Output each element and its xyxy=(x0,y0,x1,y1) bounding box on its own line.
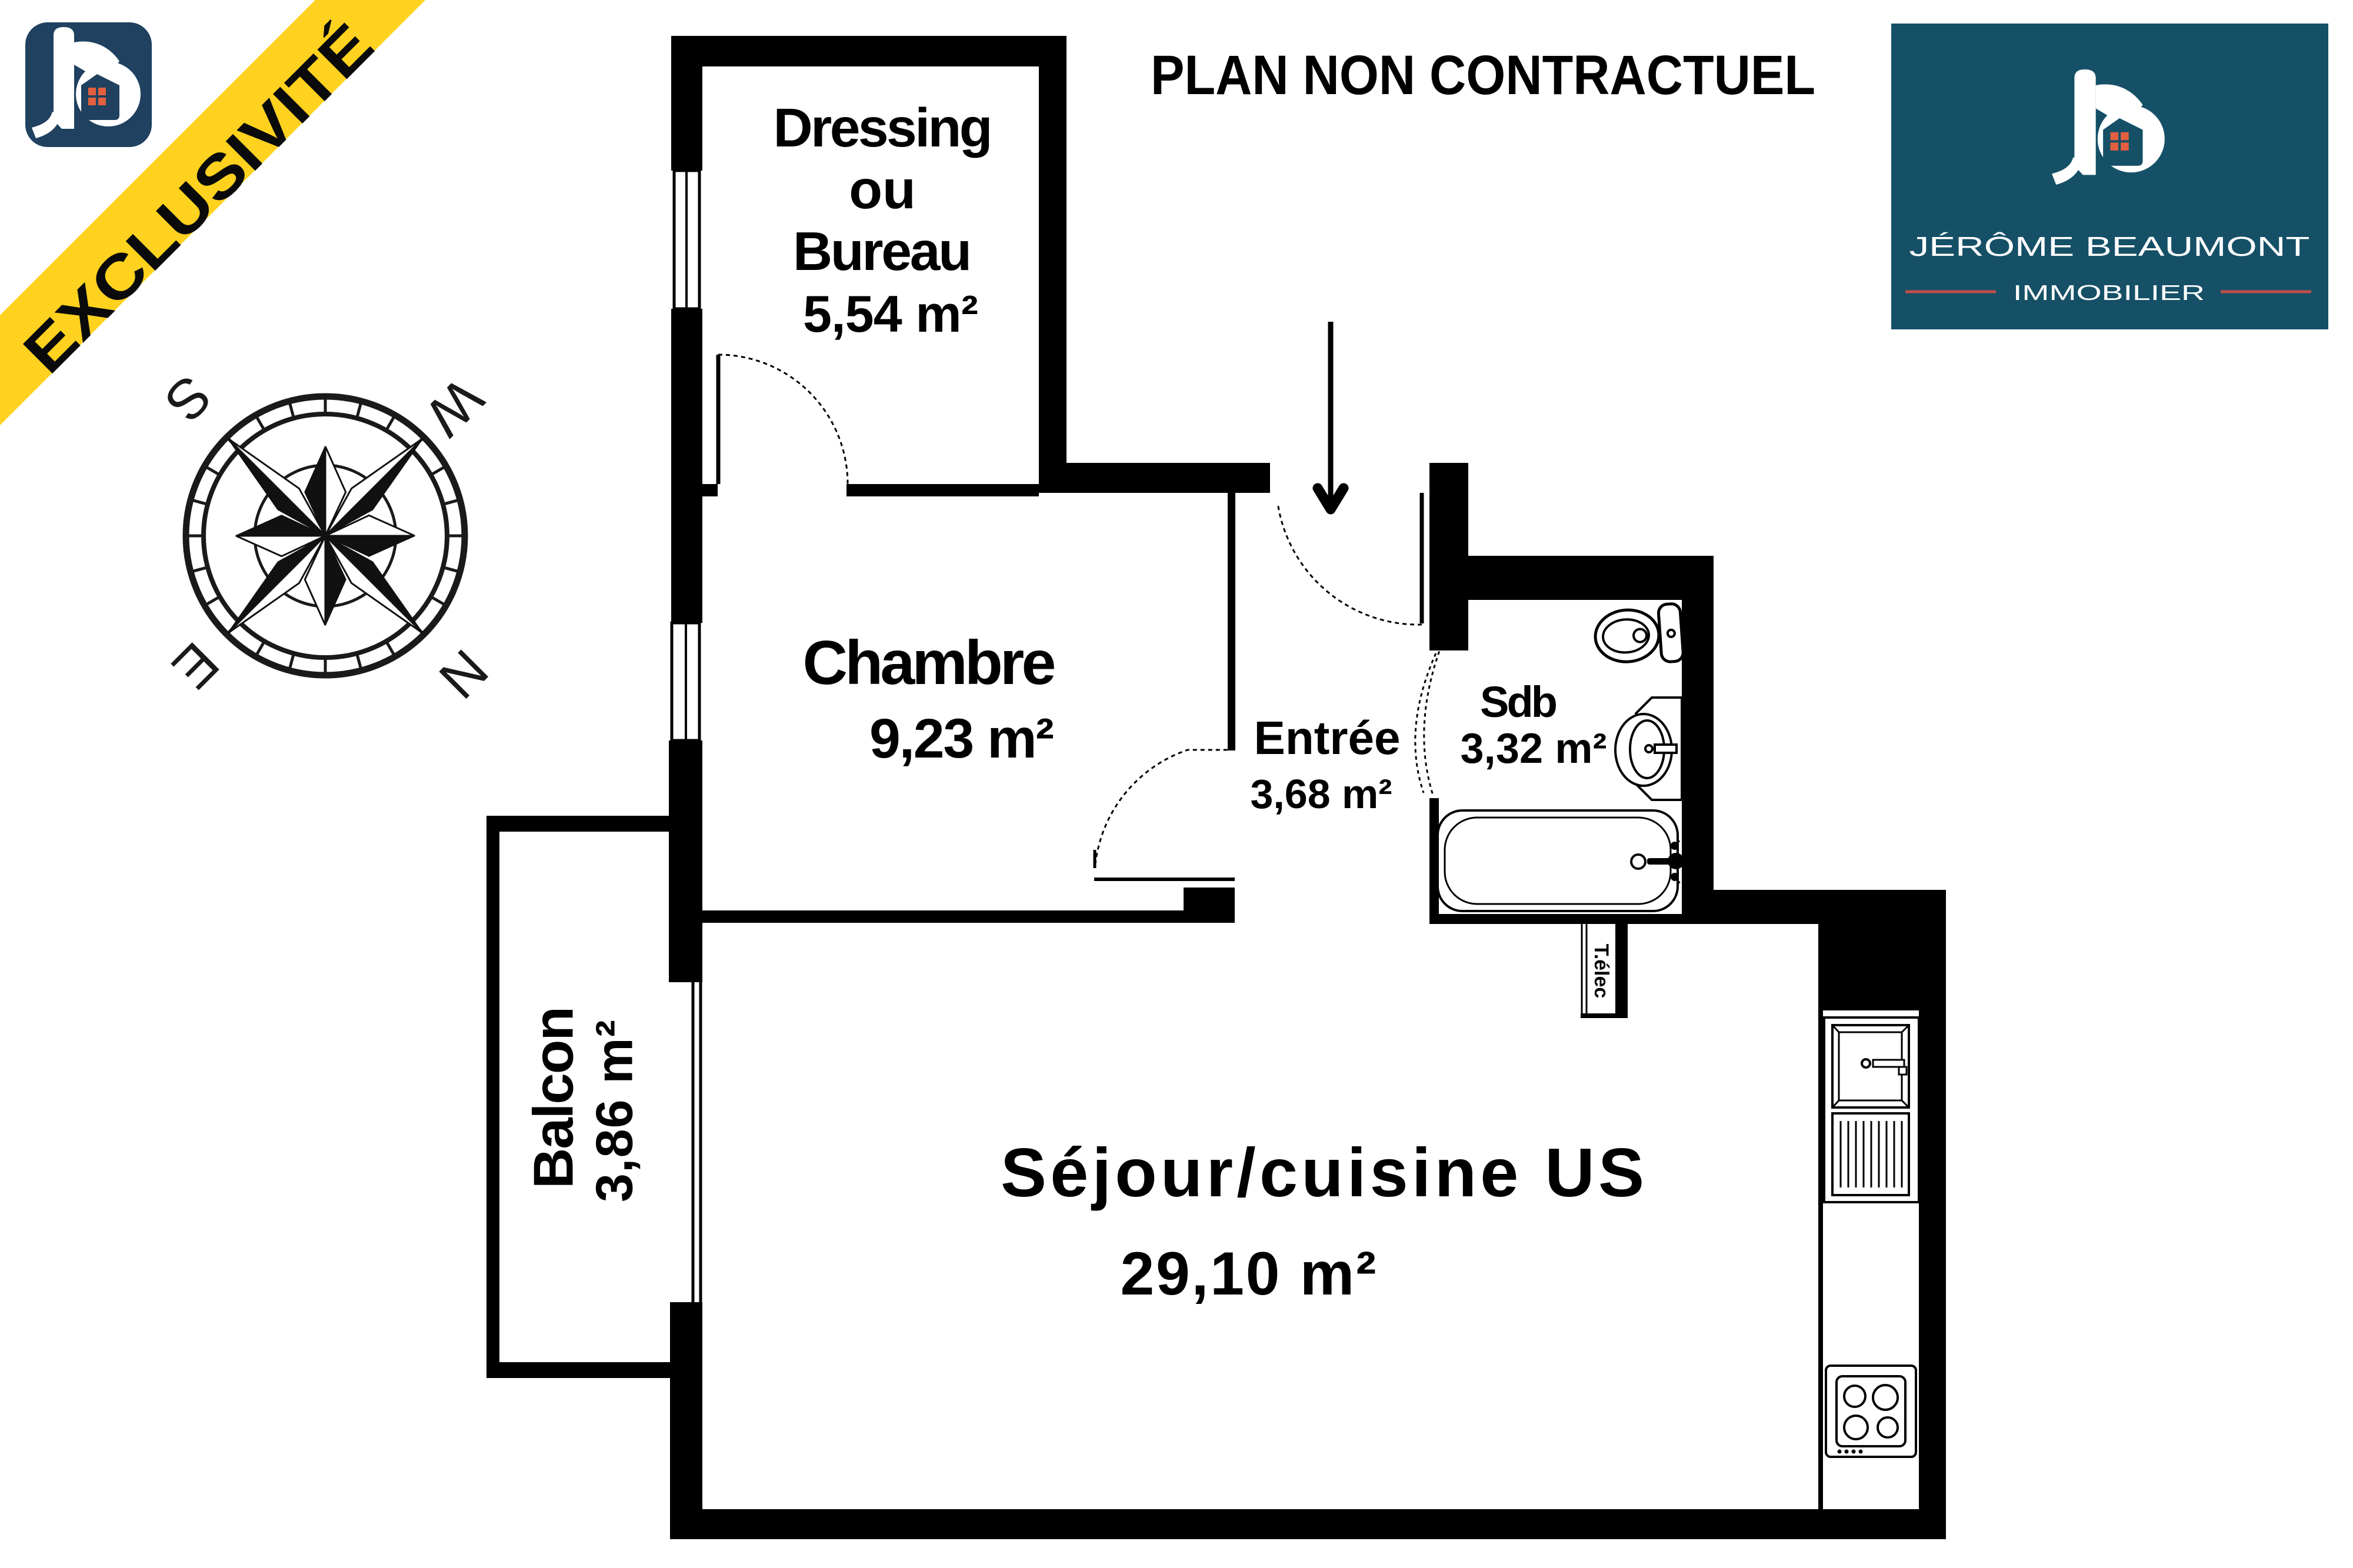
svg-text:9,23 m²: 9,23 m² xyxy=(869,708,1054,770)
svg-text:Sdb: Sdb xyxy=(1480,678,1558,726)
svg-text:Chambre: Chambre xyxy=(803,628,1056,698)
svg-text:3,68 m²: 3,68 m² xyxy=(1251,771,1392,817)
svg-text:Entrée: Entrée xyxy=(1254,712,1401,764)
svg-text:PLAN NON CONTRACTUEL: PLAN NON CONTRACTUEL xyxy=(1151,44,1815,106)
svg-text:5,54 m²: 5,54 m² xyxy=(803,285,978,343)
svg-text:T.élec: T.élec xyxy=(1590,944,1612,999)
svg-text:Bureau: Bureau xyxy=(793,221,972,282)
svg-text:JÉRÔME BEAUMONT: JÉRÔME BEAUMONT xyxy=(1909,231,2310,262)
svg-text:ou: ou xyxy=(849,159,916,220)
svg-text:29,10 m²: 29,10 m² xyxy=(1121,1240,1377,1308)
svg-text:Dressing: Dressing xyxy=(774,97,993,158)
svg-text:3,86 m²: 3,86 m² xyxy=(585,1020,644,1202)
svg-text:3,32 m²: 3,32 m² xyxy=(1461,725,1607,772)
svg-text:Balcon: Balcon xyxy=(522,1006,585,1189)
svg-text:IMMOBILIER: IMMOBILIER xyxy=(2013,281,2205,305)
svg-text:Séjour/cuisine US: Séjour/cuisine US xyxy=(1001,1134,1644,1211)
